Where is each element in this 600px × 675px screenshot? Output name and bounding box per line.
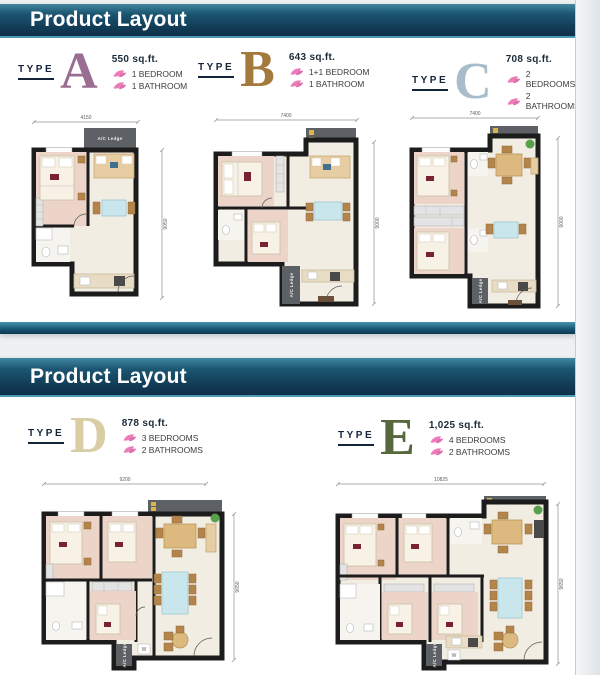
type-a-feature-2: 1 BATHROOM <box>112 81 188 91</box>
type-d-feature-1: 3 BEDROOMS <box>122 433 203 443</box>
ac-ledge-label: A/C Ledge <box>478 278 483 303</box>
type-d-header: TYPE D 878 sq.ft. 3 BEDROOMS 2 BATHROOMS <box>28 414 203 458</box>
type-a-feature-1: 1 BEDROOM <box>112 69 188 79</box>
plan-b-width-label: 7400 <box>280 113 291 119</box>
type-b-word: TYPE <box>198 62 234 78</box>
type-c-area: 708 sq.ft. <box>506 54 580 65</box>
leaf-icon <box>289 79 304 88</box>
leaf-icon <box>429 447 444 456</box>
type-e-info: 1,025 sq.ft. 4 BEDROOMS 2 BATHROOMS <box>429 420 510 457</box>
feature-text: 1 BATHROOM <box>132 81 188 91</box>
plan-c-width-label: 7400 <box>469 111 480 117</box>
plan-a-width-label: 4150 <box>80 115 91 121</box>
slide-product-layout-2: Product Layout TYPE D 878 sq.ft. 3 BEDRO… <box>0 358 576 675</box>
leaf-icon <box>506 75 521 84</box>
type-d-word: TYPE <box>28 428 64 444</box>
slide2-header-bar: Product Layout <box>0 358 576 397</box>
feature-text: 4 BEDROOMS <box>449 435 506 445</box>
type-b-feature-1: 1+1 BEDROOM <box>289 67 370 77</box>
floor-plan-b: 7400 9000 <box>202 110 387 312</box>
feature-text: 1 BEDROOM <box>132 69 183 79</box>
plan-d-dim-right: 9650 <box>232 512 241 662</box>
ac-ledge-label: A/C Ledge <box>98 136 123 141</box>
type-c-feature-1: 2 BEDROOMS <box>506 69 580 89</box>
slide1-footer-strip <box>0 322 576 334</box>
slide2-title: Product Layout <box>30 365 187 389</box>
type-d-area: 878 sq.ft. <box>122 418 203 429</box>
plan-c-dim-top: 7400 <box>410 111 540 120</box>
ac-ledge-label: A/C Ledge <box>432 642 437 667</box>
slide1-title: Product Layout <box>30 8 187 32</box>
plan-d-width-label: 9200 <box>119 477 130 483</box>
washer-label: W <box>142 647 147 653</box>
plan-b-dim-right: 9000 <box>372 140 381 306</box>
plan-a-dim-top: 4150 <box>32 115 140 124</box>
feature-text: 1+1 BEDROOM <box>309 67 370 77</box>
type-b-feature-2: 1 BATHROOM <box>289 79 370 89</box>
leaf-icon <box>506 97 521 106</box>
plan-e-height-label: 9650 <box>559 578 565 589</box>
leaf-icon <box>122 433 137 442</box>
feature-text: 2 BATHROOMS <box>142 445 203 455</box>
type-e-letter: E <box>380 416 415 460</box>
type-a-area: 550 sq.ft. <box>112 54 188 65</box>
floor-plan-e: 10825 9650 <box>326 476 568 672</box>
leaf-icon <box>429 435 444 444</box>
type-e-feature-2: 2 BATHROOMS <box>429 447 510 457</box>
plan-d-height-label: 9650 <box>235 581 241 592</box>
type-c-header: TYPE C 708 sq.ft. 2 BEDROOMS 2 BATHROOMS <box>412 54 580 111</box>
type-c-word: TYPE <box>412 75 448 91</box>
floor-plan-a: 4150 9050 A/C Ledge <box>22 112 172 310</box>
plan-e-dim-right: 9650 <box>556 502 565 666</box>
type-c-letter: C <box>454 60 492 104</box>
type-b-area: 643 sq.ft. <box>289 52 370 63</box>
type-a-word: TYPE <box>18 64 54 80</box>
plan-e-dim-top: 10825 <box>336 477 546 486</box>
floor-plan-d: 9200 9650 <box>30 476 245 672</box>
leaf-icon <box>112 69 127 78</box>
type-a-info: 550 sq.ft. 1 BEDROOM 1 BATHROOM <box>112 54 188 91</box>
plan-c-height-label: 9000 <box>559 216 565 227</box>
feature-text: 3 BEDROOMS <box>142 433 199 443</box>
type-a-letter: A <box>60 50 98 94</box>
leaf-icon <box>289 67 304 76</box>
slide1-header-bar: Product Layout <box>0 4 576 38</box>
feature-text: 1 BATHROOM <box>309 79 365 89</box>
type-e-word: TYPE <box>338 430 374 446</box>
brochure-page: Product Layout TYPE A 550 sq.ft. 1 BEDRO… <box>0 0 600 675</box>
slide-product-layout-1: Product Layout TYPE A 550 sq.ft. 1 BEDRO… <box>0 4 576 334</box>
type-e-header: TYPE E 1,025 sq.ft. 4 BEDROOMS 2 BATHROO… <box>338 416 510 460</box>
leaf-icon <box>112 81 127 90</box>
page-edge-strip <box>575 0 600 675</box>
plan-a-dim-right: 9050 <box>160 148 169 300</box>
ac-ledge-label: A/C Ledge <box>122 642 127 667</box>
type-b-info: 643 sq.ft. 1+1 BEDROOM 1 BATHROOM <box>289 52 370 89</box>
type-e-area: 1,025 sq.ft. <box>429 420 510 431</box>
floor-plan-c: 7400 9000 <box>396 108 573 316</box>
type-e-feature-1: 4 BEDROOMS <box>429 435 510 445</box>
plan-d-dim-top: 9200 <box>42 477 208 486</box>
type-d-feature-2: 2 BATHROOMS <box>122 445 203 455</box>
feature-text: 2 BATHROOMS <box>449 447 510 457</box>
plan-b-dim-top: 7400 <box>214 113 359 122</box>
plan-e-width-label: 10825 <box>434 477 448 483</box>
feature-text: 2 BEDROOMS <box>526 69 580 89</box>
type-b-letter: B <box>240 48 275 92</box>
ledge-box <box>148 500 222 513</box>
leaf-icon <box>122 445 137 454</box>
washer-label: W <box>452 653 457 659</box>
type-b-header: TYPE B 643 sq.ft. 1+1 BEDROOM 1 BATHROOM <box>198 48 370 92</box>
ac-ledge-label: A/C Ledge <box>289 272 294 297</box>
type-c-info: 708 sq.ft. 2 BEDROOMS 2 BATHROOMS <box>506 54 580 111</box>
plan-b-height-label: 9000 <box>375 217 381 228</box>
plan-c-dim-right: 9000 <box>556 136 565 308</box>
type-d-info: 878 sq.ft. 3 BEDROOMS 2 BATHROOMS <box>122 418 203 455</box>
plan-a-height-label: 9050 <box>163 218 169 229</box>
type-d-letter: D <box>70 414 108 458</box>
type-a-header: TYPE A 550 sq.ft. 1 BEDROOM 1 BATHROOM <box>18 50 187 94</box>
